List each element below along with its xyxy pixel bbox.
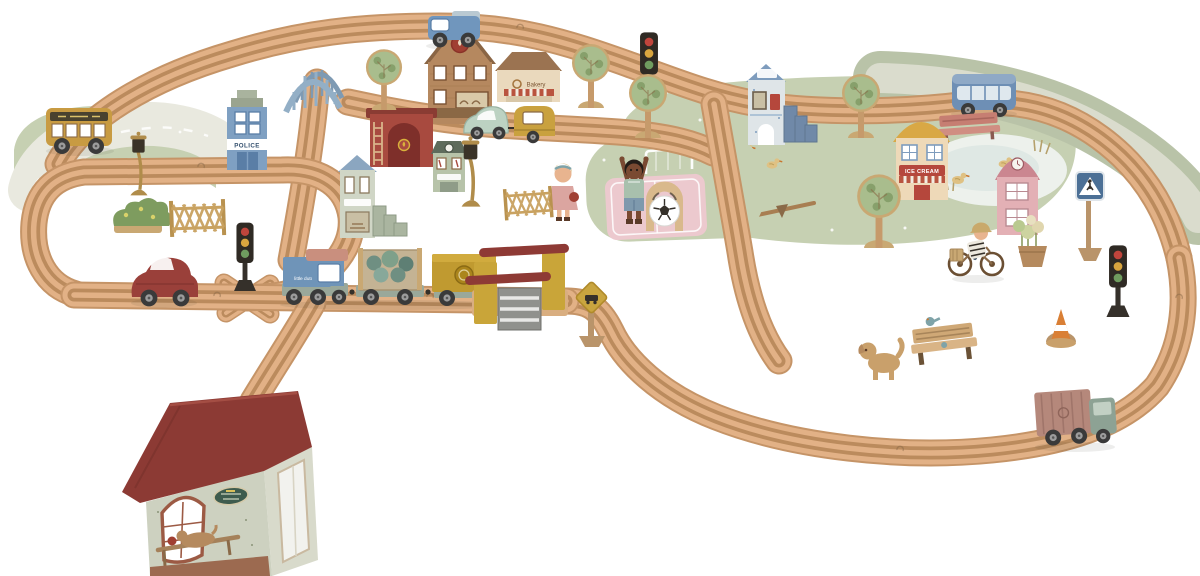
bakery-sign-text: Bakery — [527, 83, 546, 89]
pedestrian-crossing-sign — [1076, 172, 1104, 261]
tree — [572, 44, 610, 108]
train-set-photo: Bakery — [0, 0, 1200, 576]
lattice-fence — [503, 186, 554, 221]
flower-bush — [113, 198, 172, 233]
cargo-wagon — [356, 248, 431, 305]
steps — [373, 206, 407, 236]
engine: little dutch — [282, 249, 355, 305]
wooden-bench-with-bird — [908, 312, 979, 366]
flower-basket — [1013, 215, 1047, 267]
bakery-awning — [504, 89, 554, 96]
fire-station — [366, 108, 437, 167]
green-container-truck — [1034, 387, 1118, 448]
shop-awning — [899, 176, 945, 183]
football-in-arch — [646, 182, 683, 232]
traffic-cone — [1046, 309, 1076, 348]
girl-figure — [549, 163, 579, 221]
zebra-ramp — [498, 288, 541, 330]
green-clock-townhouse — [431, 141, 467, 192]
lattice-fence — [169, 199, 226, 237]
ice-cream-sign-text: ICE CREAM — [905, 169, 939, 175]
wooden-dog — [858, 340, 902, 380]
station-house — [122, 391, 318, 576]
police-sign-text: POLICE — [234, 143, 259, 150]
arched-window — [162, 497, 204, 562]
bakery-shop: Bakery — [495, 52, 562, 102]
police-station: POLICE — [227, 90, 267, 170]
ice-cream-shop: ICE CREAM — [893, 122, 950, 200]
product-photo-stage: Bakery — [0, 0, 1200, 576]
blue-gable-house-with-steps — [338, 155, 407, 238]
traffic-light-right — [1106, 245, 1129, 317]
